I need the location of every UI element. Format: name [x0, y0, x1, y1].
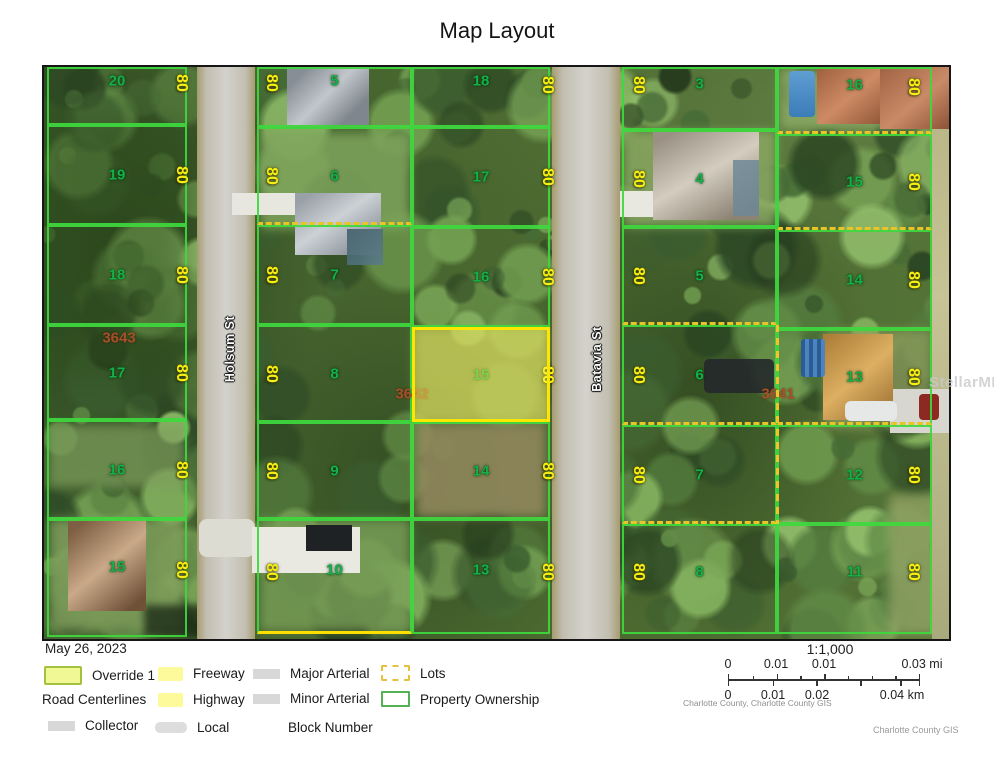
parcel-dimension: 80	[262, 365, 280, 383]
parcel-dimension: 80	[904, 466, 922, 484]
parcel-number: 15	[109, 559, 126, 576]
street-label: Batavia St	[590, 326, 604, 391]
legend-label: Minor Arterial	[290, 691, 370, 706]
parcel-dimension: 80	[629, 466, 647, 484]
minor-arterial-swatch	[253, 694, 280, 704]
parcel-dimension: 80	[904, 563, 922, 581]
legend-item-road-centerlines: Road Centerlines	[42, 692, 146, 707]
parcel-dimension: 80	[538, 462, 556, 480]
scale-bar	[728, 674, 920, 686]
scale-tick	[848, 676, 850, 680]
parcel-number: 8	[695, 564, 703, 581]
scale-tick	[773, 680, 775, 686]
parcel-number: 14	[473, 462, 490, 479]
scale-mi-label: 0	[725, 657, 732, 671]
page-title: Map Layout	[0, 18, 994, 44]
legend-label: Collector	[85, 718, 138, 733]
scale-tick	[753, 676, 755, 680]
parcel-number: 10	[326, 562, 343, 579]
scale-tick	[816, 680, 818, 686]
parcel-dimension: 80	[629, 267, 647, 285]
scale-mi-label: 0.01	[812, 657, 836, 671]
street-label: Holsum St	[223, 316, 237, 382]
parcel-number: 13	[473, 562, 490, 579]
property-ownership-swatch	[381, 691, 410, 707]
legend-label: Major Arterial	[290, 666, 370, 681]
scale-tick	[900, 680, 902, 686]
parcel-dimension: 80	[172, 266, 190, 284]
legend-item-collector: Collector	[48, 718, 138, 733]
parcel-number: 16	[846, 77, 863, 94]
legend: Override 1 Freeway Major Arterial Lots R…	[40, 663, 620, 745]
stellar-mls-watermark: StellarMLS	[929, 374, 994, 391]
parcel-number: 6	[695, 367, 703, 384]
parcel-dimension: 80	[172, 561, 190, 579]
parcel-dimension: 80	[629, 76, 647, 94]
parcel-number: 8	[330, 365, 338, 382]
scale-mi-label: 0.01	[764, 657, 788, 671]
map-date: May 26, 2023	[45, 641, 127, 656]
parcel-number: 19	[109, 167, 126, 184]
parcel-dimension: 80	[538, 563, 556, 581]
local-swatch	[155, 722, 187, 733]
parcel-number: 18	[109, 267, 126, 284]
parcel-overlay: 2080198018801780168015805806807808809801…	[44, 67, 949, 639]
parcel-dimension: 80	[538, 76, 556, 94]
parcel-number: 20	[109, 73, 126, 90]
page: { "page": { "title": "Map Layout", "date…	[0, 0, 994, 768]
parcel-number: 16	[109, 461, 126, 478]
legend-item-minor-arterial: Minor Arterial	[253, 691, 370, 706]
legend-item-property-ownership: Property Ownership	[381, 691, 539, 707]
parcel-dimension: 80	[904, 173, 922, 191]
parcel-number: 6	[330, 168, 338, 185]
legend-item-override: Override 1	[44, 666, 155, 685]
parcel-number: 16	[473, 269, 490, 286]
override-swatch	[44, 666, 82, 685]
parcel-number: 17	[109, 364, 126, 381]
parcel-A-15	[47, 519, 187, 637]
collector-swatch	[48, 721, 75, 731]
parcel-dimension: 80	[904, 78, 922, 96]
legend-label: Highway	[193, 692, 245, 707]
parcel-dimension: 80	[172, 74, 190, 92]
legend-item-block-number: Block Number	[288, 720, 373, 735]
parcel-number: 14	[846, 271, 863, 288]
parcel-dimension: 80	[262, 74, 280, 92]
parcel-dimension: 80	[172, 461, 190, 479]
parcel-dimension: 80	[538, 268, 556, 286]
scale-tick	[895, 676, 897, 680]
legend-label: Override 1	[92, 668, 155, 683]
legend-item-highway: Highway	[158, 692, 245, 707]
legend-label: Block Number	[288, 720, 373, 735]
major-arterial-swatch	[253, 669, 280, 679]
attribution: Charlotte County, Charlotte County GIS	[683, 698, 832, 708]
legend-item-lots: Lots	[381, 665, 446, 681]
parcel-number: 17	[473, 169, 490, 186]
parcel-number: 7	[330, 267, 338, 284]
lot-line	[776, 325, 779, 524]
parcel-dimension: 80	[262, 167, 280, 185]
block-number: 3643	[102, 330, 135, 347]
parcel-number: 15	[846, 174, 863, 191]
scale-ratio: 1:1,000	[807, 641, 854, 657]
parcel-number: 18	[473, 73, 490, 90]
parcel-C-15	[412, 327, 550, 422]
scale-tick	[777, 674, 779, 681]
parcel-number: 3	[695, 76, 703, 93]
scale-tick	[872, 676, 874, 680]
scale-km-label: 0.04 km	[880, 688, 924, 702]
parcel-dimension: 80	[629, 170, 647, 188]
legend-label: Freeway	[193, 666, 245, 681]
lots-swatch	[381, 665, 410, 681]
parcel-dimension: 80	[538, 168, 556, 186]
parcel-number: 13	[846, 369, 863, 386]
parcel-number: 7	[695, 466, 703, 483]
legend-label: Local	[197, 720, 229, 735]
highway-swatch	[158, 693, 183, 707]
parcel-dimension: 80	[629, 366, 647, 384]
parcel-dimension: 80	[629, 563, 647, 581]
legend-label: Property Ownership	[420, 692, 539, 707]
parcel-number: 12	[846, 466, 863, 483]
parcel-number: 5	[695, 268, 703, 285]
legend-item-local: Local	[155, 720, 229, 735]
parcel-dimension: 80	[172, 364, 190, 382]
legend-label: Road Centerlines	[42, 692, 146, 707]
parcel-number: 5	[330, 73, 338, 90]
scale-tick	[860, 680, 862, 686]
legend-item-major-arterial: Major Arterial	[253, 666, 370, 681]
map-canvas: 2080198018801780168015805806807808809801…	[42, 65, 951, 641]
scale-tick	[800, 676, 802, 680]
credit: Charlotte County GIS	[873, 725, 959, 735]
scale-block: 1:1,000 0 0.01 0.01 0.03 mi 0 0.01 0.02 …	[697, 641, 947, 701]
parcel-number: 4	[695, 170, 703, 187]
parcel-number: 11	[847, 564, 863, 581]
legend-label: Lots	[420, 666, 446, 681]
scale-mi-label: 0.03 mi	[902, 657, 943, 671]
freeway-swatch	[158, 667, 183, 681]
parcel-dimension: 80	[904, 368, 922, 386]
parcel-number: 9	[330, 462, 338, 479]
scale-tick	[824, 674, 826, 681]
parcel-dimension: 80	[262, 462, 280, 480]
parcel-dimension: 80	[904, 271, 922, 289]
legend-item-freeway: Freeway	[158, 666, 245, 681]
parcel-dimension: 80	[262, 266, 280, 284]
parcel-dimension: 80	[262, 563, 280, 581]
parcel-dimension: 80	[172, 166, 190, 184]
